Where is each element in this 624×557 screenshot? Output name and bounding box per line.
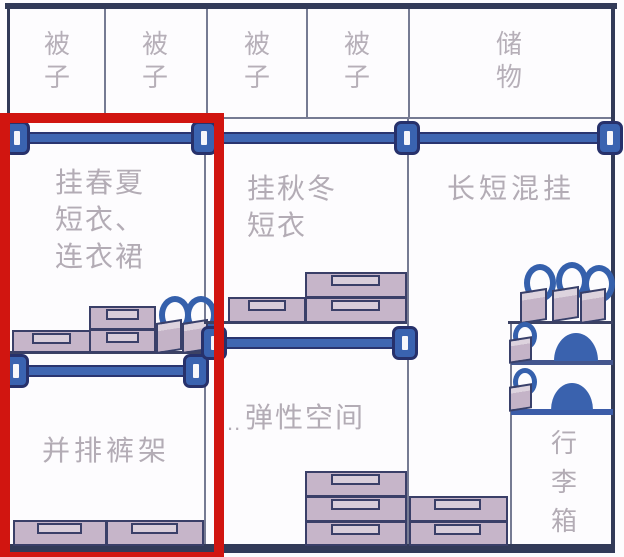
hanging-rod-middle-lower <box>213 337 406 349</box>
top-row-divider <box>408 9 410 117</box>
drawer <box>409 521 508 546</box>
storage-box <box>228 297 306 323</box>
section-label-flexible-space: 弹性空间 <box>245 399 365 436</box>
handbag-icon <box>580 265 614 322</box>
drawer <box>409 496 508 522</box>
handbag-icon <box>509 322 539 362</box>
storage-box <box>305 297 407 323</box>
quilt-compartment-label: 被 子 <box>142 28 168 94</box>
drawer <box>305 496 407 522</box>
highlight-box <box>0 113 224 557</box>
section-label-luggage: 行 李 箱 <box>551 424 579 541</box>
flexible-space-dots: .. <box>227 410 241 436</box>
top-border <box>5 3 617 9</box>
quilt-compartment-label: 被 子 <box>344 28 370 94</box>
rod-bracket-icon <box>394 121 420 155</box>
quilt-compartment-label: 被 子 <box>44 28 70 94</box>
hat-dome-icon <box>554 333 598 361</box>
handbag-icon <box>520 264 556 322</box>
storage-compartment-label: 储 物 <box>496 28 522 94</box>
storage-box <box>305 272 407 298</box>
drawer <box>305 521 407 546</box>
top-row-divider <box>306 9 308 117</box>
section-label-autumn-winter: 挂秋冬 短衣 <box>247 170 337 244</box>
handbag-icon <box>509 368 539 410</box>
rod-bracket-icon <box>392 326 418 360</box>
wardrobe-layout-diagram: 被 子 被 子 被 子 被 子 储 物 挂春夏 短衣、 连衣裙 挂秋冬 短衣 长… <box>0 0 624 557</box>
quilt-compartment-label: 被 子 <box>244 28 270 94</box>
rod-bracket-icon <box>597 121 623 155</box>
top-row-divider <box>104 9 106 117</box>
drawer <box>305 471 407 497</box>
hat-dome-icon <box>551 383 593 410</box>
top-row-divider <box>206 9 208 117</box>
section-label-mixed-hang: 长短混挂 <box>447 170 575 207</box>
